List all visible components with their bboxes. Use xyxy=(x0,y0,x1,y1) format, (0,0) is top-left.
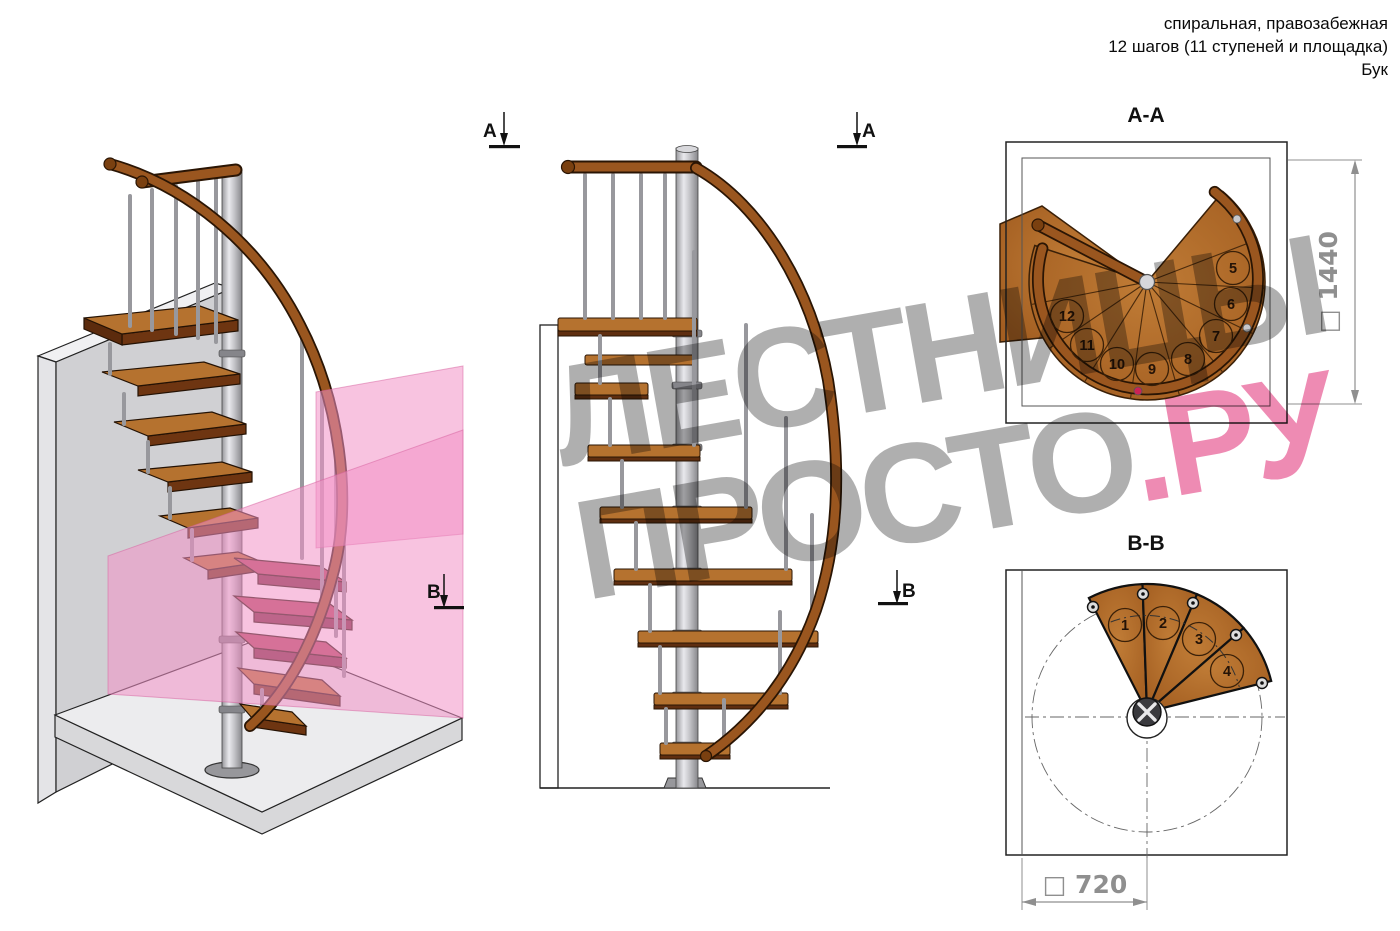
section-marker-b-right: В xyxy=(878,570,916,605)
view-3d-isometric xyxy=(38,158,463,834)
steps-fan xyxy=(1089,584,1271,712)
section-marker-a-right: А xyxy=(837,112,876,148)
plan-title: В-В xyxy=(1127,532,1164,555)
marker-letter: В xyxy=(902,581,916,602)
title-line-type: спиральная, правозабежная xyxy=(1108,12,1388,35)
marker-letter: А xyxy=(862,121,876,142)
plan-title: А-А xyxy=(1127,104,1164,127)
marker-letter: В xyxy=(427,582,441,603)
wall-side-edge xyxy=(38,356,56,803)
step-number: 1 xyxy=(1121,618,1129,634)
step-number: 6 xyxy=(1227,297,1235,313)
drawing-sheet: А А В В А-А xyxy=(0,0,1400,931)
dimension-label: □ 1440 xyxy=(1314,231,1343,333)
dimension-1440: □ 1440 xyxy=(1288,160,1362,404)
view-elevation xyxy=(540,146,836,789)
pole-top xyxy=(1140,275,1155,290)
plan-view-a-a: А-А xyxy=(1000,104,1362,423)
step-number: 10 xyxy=(1109,357,1125,373)
title-line-steps: 12 шагов (11 ступеней и площадка) xyxy=(1108,35,1388,58)
arrow-down-icon xyxy=(853,133,861,146)
dimension-720: □ 720 xyxy=(1022,858,1147,910)
step-number: 7 xyxy=(1212,329,1220,345)
step-number: 12 xyxy=(1059,309,1075,325)
section-marker-a-left: А xyxy=(483,112,520,148)
step-number: 9 xyxy=(1148,362,1156,378)
step-number: 8 xyxy=(1184,352,1192,368)
drawing-canvas: А А В В А-А xyxy=(0,0,1400,931)
step-number: 3 xyxy=(1195,632,1203,648)
step-number: 2 xyxy=(1159,616,1167,632)
step-number: 11 xyxy=(1079,338,1094,354)
title-line-material: Бук xyxy=(1108,58,1388,81)
step-number: 5 xyxy=(1229,261,1237,277)
step-number: 4 xyxy=(1223,664,1231,680)
title-block: спиральная, правозабежная 12 шагов (11 с… xyxy=(1108,12,1388,81)
wall-elevation xyxy=(540,325,558,788)
arrow-down-icon xyxy=(500,133,508,146)
dimension-label: □ 720 xyxy=(1043,870,1128,899)
plan-view-b-b: В-В xyxy=(1006,532,1287,910)
marker-letter: А xyxy=(483,121,497,142)
